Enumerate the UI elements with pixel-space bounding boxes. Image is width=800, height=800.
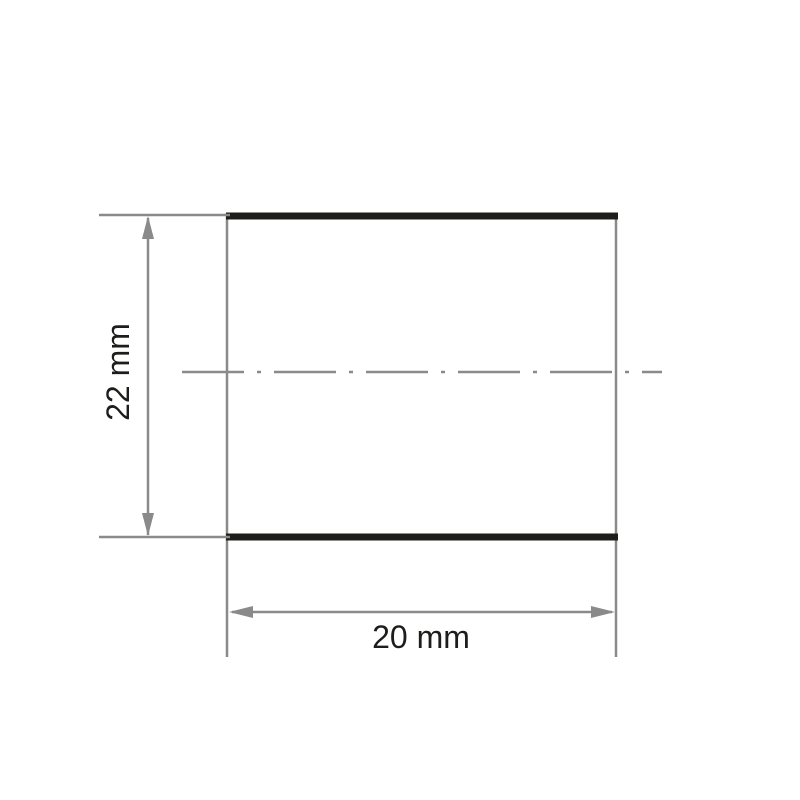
arrow-up-icon [142, 216, 154, 239]
height-dimension-label: 22 mm [100, 323, 136, 421]
drawing-svg: 22 mm 20 mm [0, 0, 800, 800]
arrow-left-icon [229, 606, 253, 618]
technical-drawing-canvas: 22 mm 20 mm [0, 0, 800, 800]
width-dimension-label: 20 mm [372, 619, 470, 655]
arrow-right-icon [591, 606, 615, 618]
arrow-down-icon [142, 513, 154, 536]
